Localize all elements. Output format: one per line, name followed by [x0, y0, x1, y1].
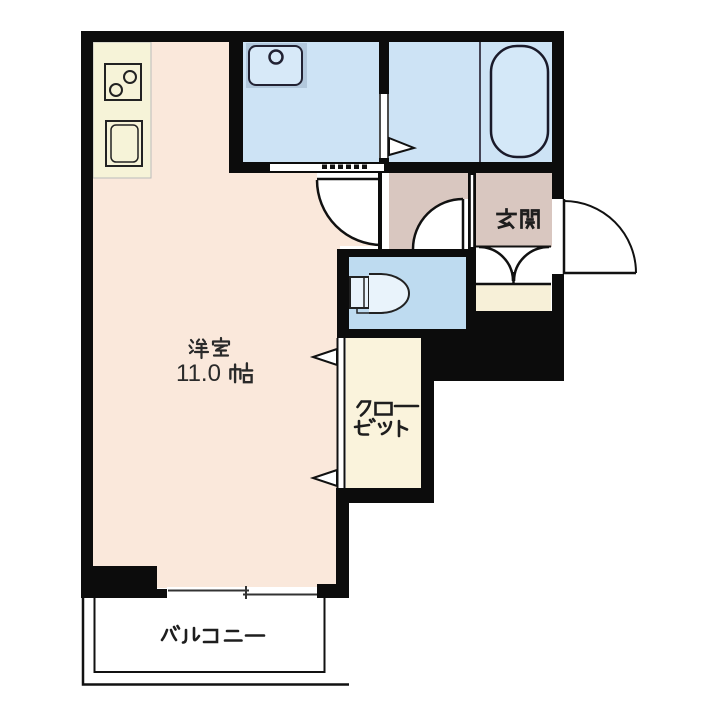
svg-text:11.0: 11.0: [176, 360, 221, 387]
